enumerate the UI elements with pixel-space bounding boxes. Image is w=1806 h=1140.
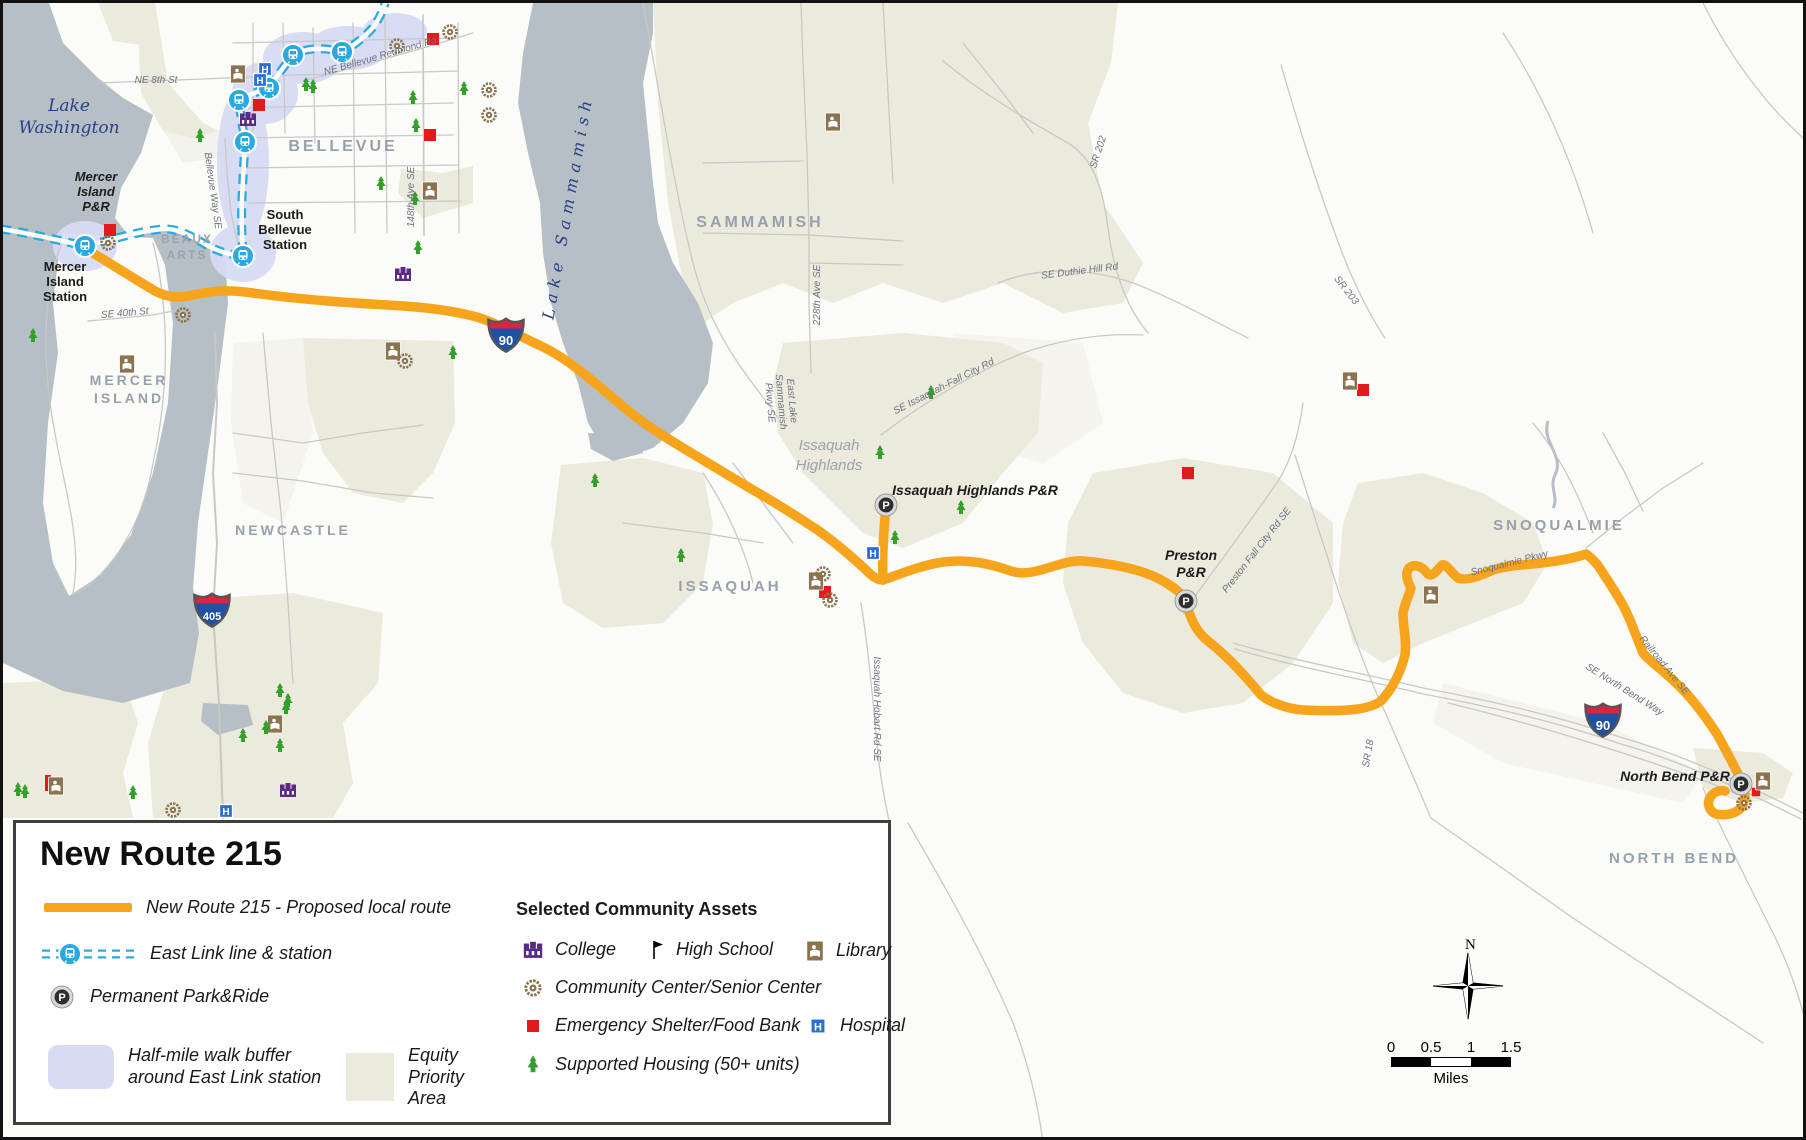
svg-text:H: H	[814, 1021, 822, 1033]
svg-text:90: 90	[499, 333, 513, 348]
label-south-bellevue-station: SouthBellevueStation	[258, 207, 311, 252]
label-newcastle: NEWCASTLE	[235, 522, 351, 538]
college-icon	[280, 783, 296, 797]
shelter-icon	[1357, 384, 1369, 396]
hospital-icon: H	[254, 74, 267, 88]
scale-tick-0: 0	[1387, 1039, 1395, 1056]
label-148th-ave-se: 148th Ave SE	[406, 166, 417, 227]
legend-buffer-item: Half-mile walk buffer around East Link s…	[48, 1045, 321, 1089]
svg-text:P: P	[58, 992, 65, 1004]
legend-title: New Route 215	[40, 835, 282, 874]
legend-equity-label: Equity Priority Area	[408, 1045, 464, 1110]
label-ne-8th-st: NE 8th St	[135, 75, 179, 86]
legend-eastlink-item: East Link line & station	[40, 939, 332, 969]
legend-hospital-label: Hospital	[840, 1015, 905, 1037]
housing-icon	[129, 785, 138, 799]
svg-text:H: H	[222, 807, 229, 818]
college-icon	[521, 939, 545, 961]
supported-housing-icon	[521, 1053, 545, 1077]
parkride-icon: P	[1175, 590, 1197, 612]
walk-buffer-swatch	[48, 1045, 114, 1089]
library-icon	[231, 65, 246, 83]
label-se-40th-st: SE 40th St	[100, 306, 150, 321]
shelter-icon	[521, 1015, 545, 1037]
shelter-icon	[104, 224, 116, 236]
legend-eastlink-label: East Link line & station	[150, 943, 332, 965]
legend-housing-item: Supported Housing (50+ units)	[521, 1053, 800, 1077]
legend-commcenter-item: Community Center/Senior Center	[521, 977, 821, 999]
legend-library-label: Library	[836, 940, 891, 962]
label-sammamish: SAMMAMISH	[696, 214, 823, 231]
library-icon	[423, 182, 438, 200]
legend-college-label: College	[555, 939, 616, 961]
compass-icon	[1415, 941, 1515, 1041]
parkride-icon: P	[1730, 773, 1752, 795]
community-center-icon	[521, 977, 545, 999]
svg-text:405: 405	[203, 611, 221, 623]
legend-parkride-item: P Permanent Park&Ride	[48, 983, 269, 1011]
scale-tick-1: 1	[1467, 1039, 1475, 1056]
housing-icon	[377, 176, 386, 190]
label-issaquah: ISSAQUAH	[678, 578, 781, 595]
equity-area-swatch	[346, 1053, 394, 1101]
label-issaquah-hobart-rd-se: Issaquah Hobart Rd SE	[871, 656, 882, 761]
label-sr-203: SR 203	[1331, 274, 1360, 307]
label-railroad-ave-se: Railroad Ave SE	[1637, 634, 1692, 698]
legend-route-item: New Route 215 - Proposed local route	[44, 897, 451, 919]
library-icon	[386, 342, 401, 360]
label-bellevue: BELLEVUE	[288, 138, 397, 155]
station-icon	[232, 245, 254, 267]
highschool-icon	[646, 939, 666, 961]
legend-route-label: New Route 215 - Proposed local route	[146, 897, 451, 919]
scale-ticks: 00.511.5	[1391, 1039, 1541, 1057]
svg-text:P: P	[882, 500, 889, 512]
assets-header: Selected Community Assets	[516, 899, 757, 920]
route-215-map-page: PPPHHHH 9090405 LakeWashingtonLake Samma…	[0, 0, 1806, 1140]
housing-icon	[414, 240, 423, 254]
scale-bar-graphic	[1391, 1057, 1511, 1067]
parkride-swatch: P	[48, 983, 76, 1011]
svg-text:H: H	[869, 549, 876, 560]
library-icon	[1756, 772, 1771, 790]
legend-highschool-label: High School	[676, 939, 773, 961]
scale-unit: Miles	[1391, 1070, 1511, 1087]
hospital-icon: H	[867, 547, 880, 561]
station-icon	[234, 131, 256, 153]
label-north-bend: NORTH BEND	[1609, 850, 1739, 867]
shelter-icon	[1182, 467, 1194, 479]
station-icon	[228, 89, 250, 111]
interstate-90-shield: 90	[490, 320, 523, 351]
svg-text:H: H	[256, 76, 263, 87]
shelter-icon	[253, 99, 265, 111]
legend-housing-label: Supported Housing (50+ units)	[555, 1054, 800, 1076]
svg-text:P: P	[1737, 779, 1744, 791]
library-icon	[268, 715, 283, 733]
college-icon	[240, 112, 256, 126]
east-link-swatch	[40, 939, 136, 969]
station-icon	[74, 235, 96, 257]
legend-shelter-item: Emergency Shelter/Food Bank	[521, 1015, 800, 1037]
legend-library-item: Library	[804, 939, 891, 963]
hospital-icon: H	[220, 805, 233, 819]
legend-parkride-label: Permanent Park&Ride	[90, 986, 269, 1008]
label-snoqualmie: SNOQUALMIE	[1493, 517, 1625, 534]
legend-college-item: College	[521, 939, 616, 961]
north-arrow: N	[1415, 941, 1515, 1046]
scale-tick-1.5: 1.5	[1501, 1039, 1522, 1056]
library-icon	[804, 939, 826, 963]
hospital-icon: H	[806, 1015, 830, 1037]
legend-buffer-label: Half-mile walk buffer around East Link s…	[128, 1045, 321, 1088]
legend-shelter-label: Emergency Shelter/Food Bank	[555, 1015, 800, 1037]
label-sr-18: SR 18	[1361, 738, 1377, 768]
library-icon	[120, 355, 135, 373]
north-label: N	[1465, 937, 1476, 954]
svg-text:90: 90	[1596, 718, 1610, 733]
label-mercer-island-station: MercerIslandStation	[43, 259, 87, 304]
svg-text:P: P	[1182, 596, 1189, 608]
label-issaquah-highlands-p-r: Issaquah Highlands P&R	[892, 482, 1059, 498]
legend-highschool-item: High School	[646, 939, 773, 961]
route-line-swatch	[44, 903, 132, 912]
label-mercer-island: MERCERISLAND	[90, 372, 169, 406]
label-east-lake-sammamish-pkwy-se: East LakeSammamishPkwy SE	[762, 373, 800, 432]
library-icon	[826, 113, 841, 131]
legend-panel: New Route 215 New Route 215 - Proposed l…	[13, 820, 891, 1125]
library-icon	[1343, 372, 1358, 390]
college-icon	[395, 267, 411, 281]
scale-tick-0.5: 0.5	[1421, 1039, 1442, 1056]
label-228th-ave-se: 228th Ave SE	[812, 264, 823, 326]
library-icon	[1424, 586, 1439, 604]
station-icon	[282, 44, 304, 66]
scale-bar: 00.511.5 Miles	[1391, 1039, 1541, 1087]
library-icon	[49, 777, 64, 795]
legend-commcenter-label: Community Center/Senior Center	[555, 977, 821, 999]
legend-equity-item: Equity Priority Area	[346, 1045, 464, 1110]
shelter-icon	[424, 129, 436, 141]
label-north-bend-p-r: North Bend P&R	[1620, 768, 1731, 784]
legend-hospital-item: H Hospital	[806, 1015, 905, 1037]
